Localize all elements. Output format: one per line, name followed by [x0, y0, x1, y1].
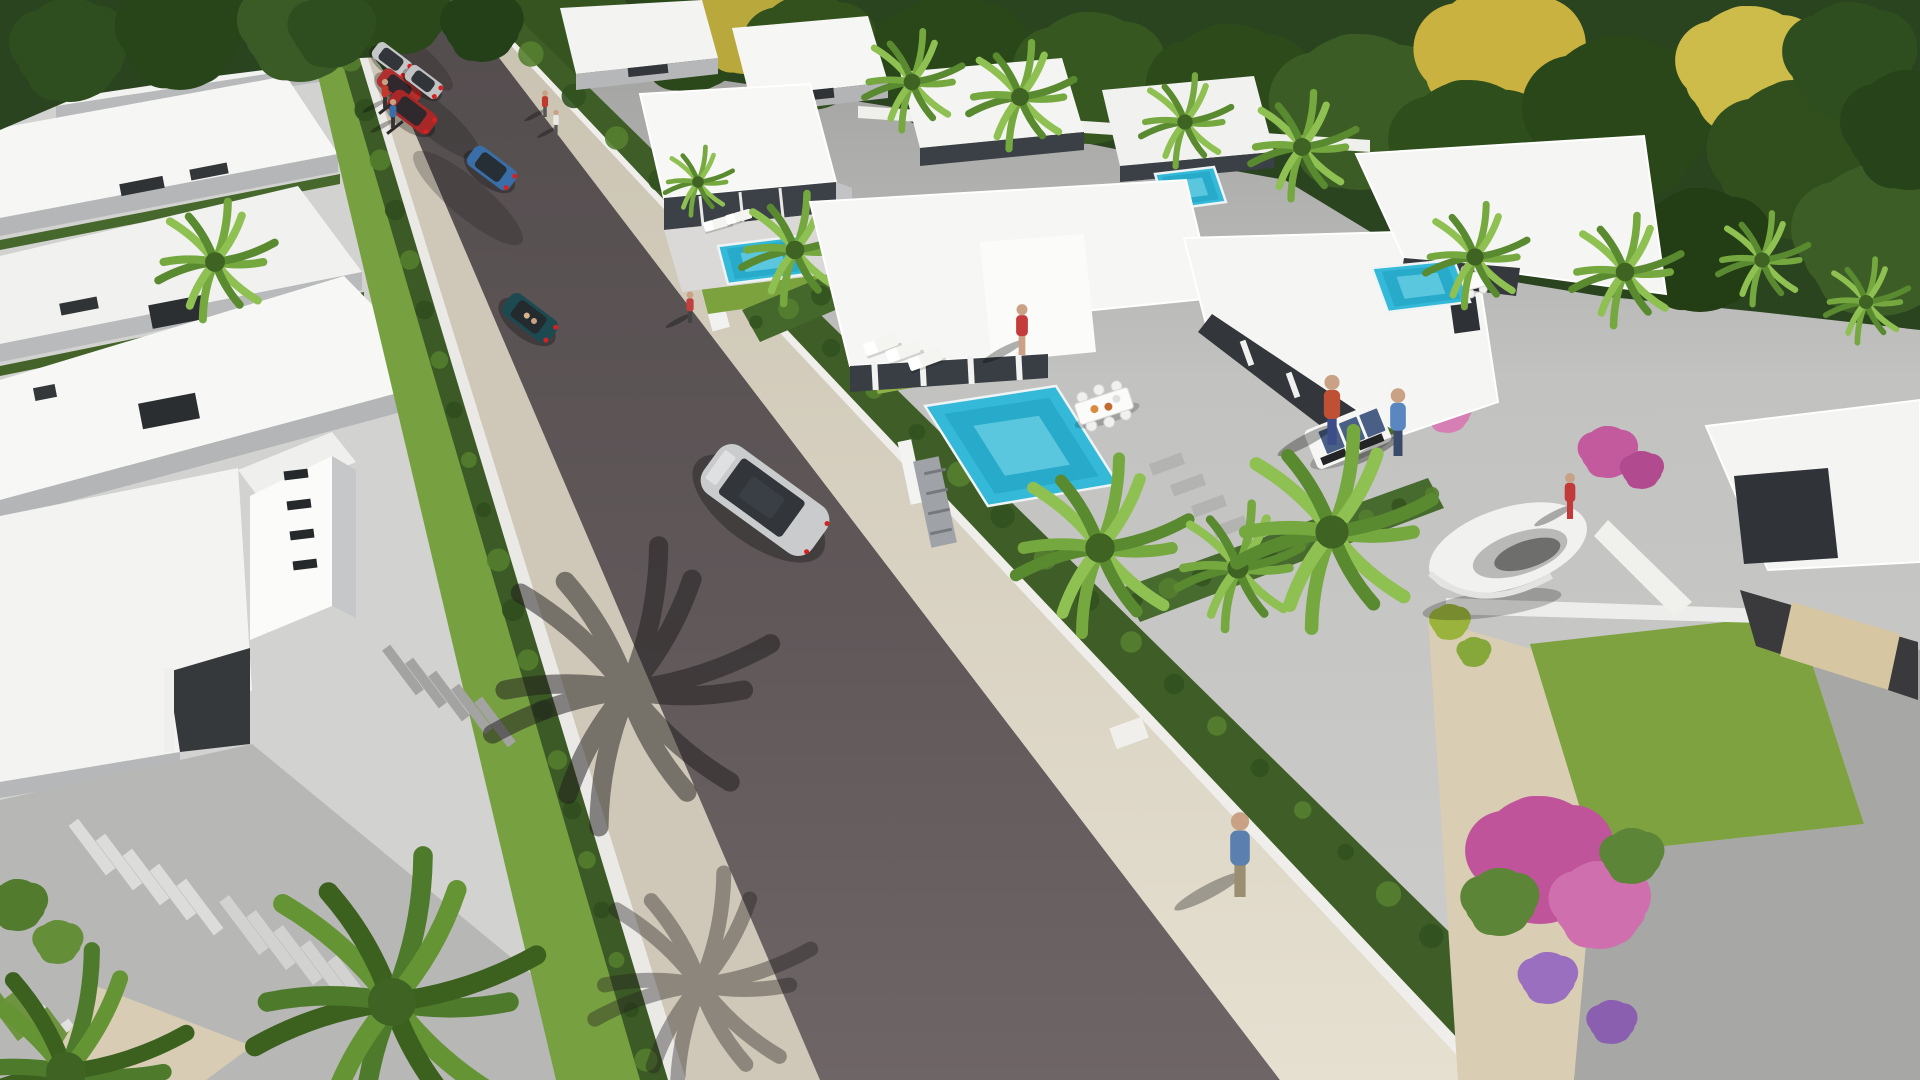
aerial-render-viewport — [0, 0, 1920, 1080]
villa-development-rendering — [0, 0, 1920, 1080]
porch-column — [164, 668, 174, 752]
tall-villa-side — [332, 456, 356, 618]
villa-tower — [980, 234, 1096, 362]
scene-layers — [0, 0, 1920, 1080]
terrace-recess — [1734, 468, 1838, 564]
